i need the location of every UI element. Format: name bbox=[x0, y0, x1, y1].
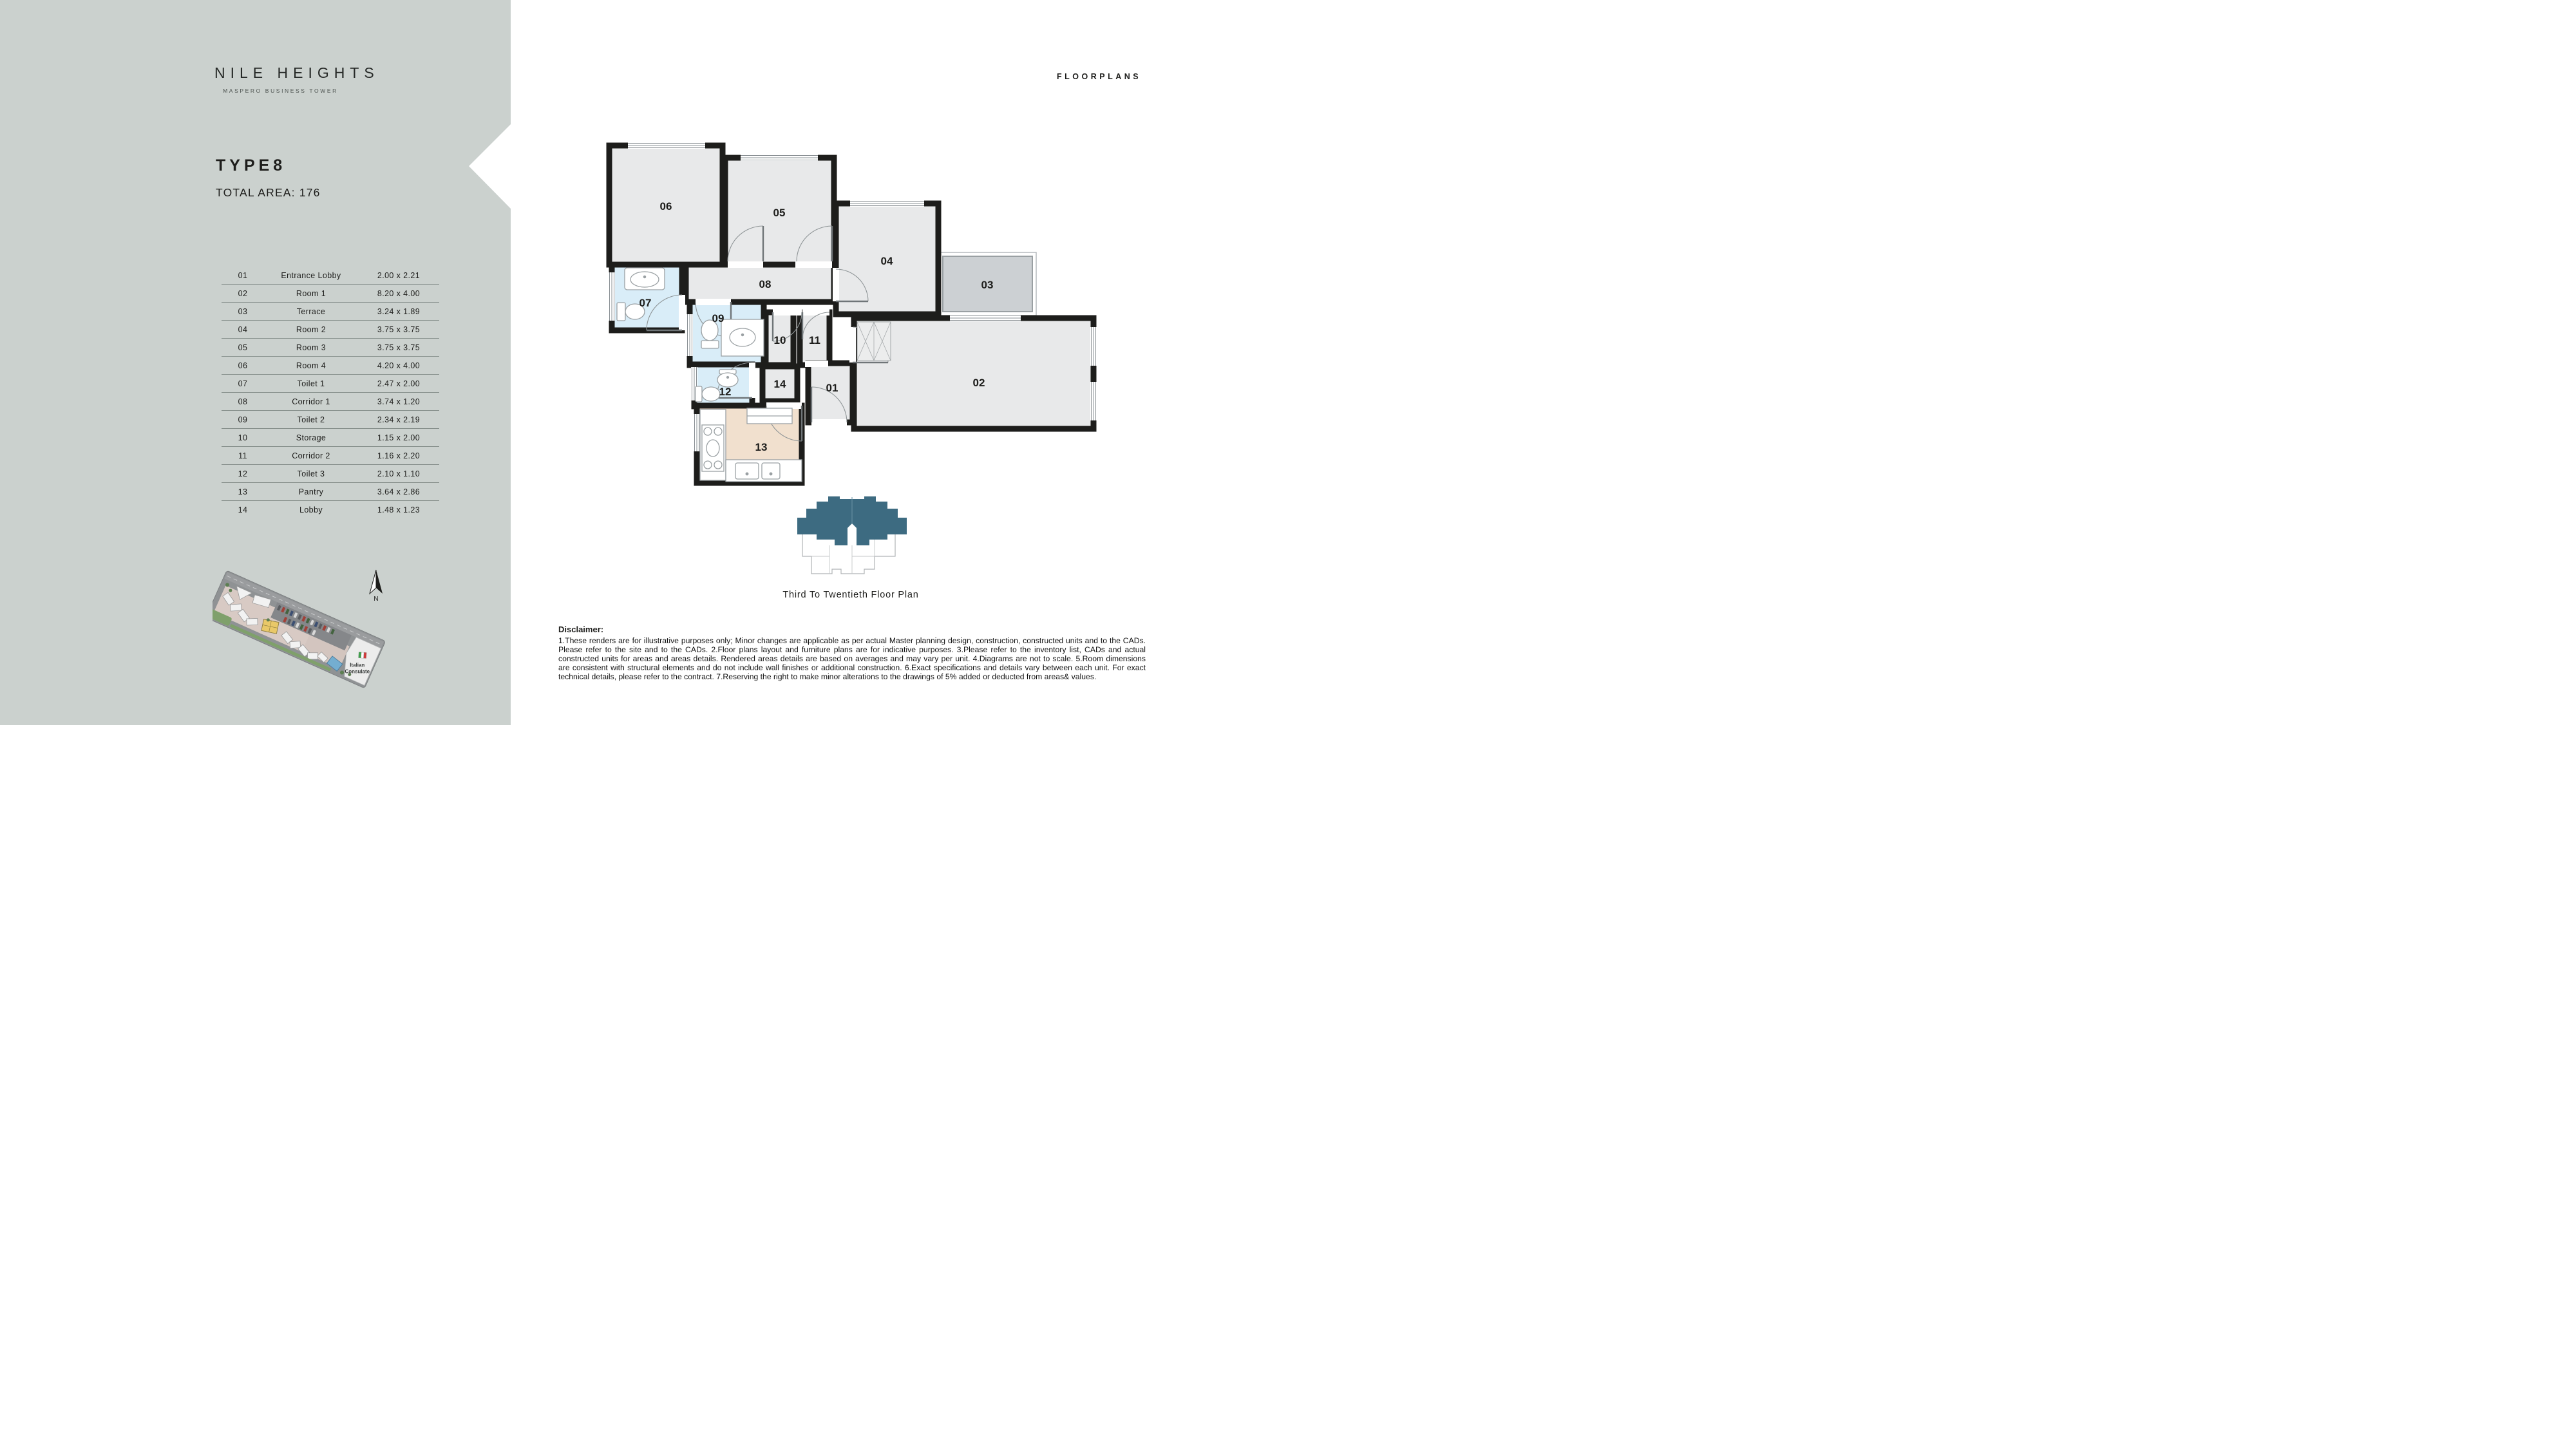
room-name: Toilet 3 bbox=[264, 469, 358, 478]
legend-row: 07Toilet 12.47 x 2.00 bbox=[222, 375, 439, 393]
room-dims: 8.20 x 4.00 bbox=[358, 289, 439, 298]
room-name: Toilet 2 bbox=[264, 415, 358, 424]
room-dims: 1.16 x 2.20 bbox=[358, 451, 439, 460]
label-room-11: 11 bbox=[809, 334, 820, 346]
room-number: 08 bbox=[222, 397, 264, 406]
room-dims: 4.20 x 4.00 bbox=[358, 361, 439, 370]
brand-subtitle: MASPERO BUSINESS TOWER bbox=[214, 88, 346, 94]
room-dims: 2.34 x 2.19 bbox=[358, 415, 439, 424]
room-number: 14 bbox=[222, 505, 264, 514]
room-number: 06 bbox=[222, 361, 264, 370]
legend-row: 01Entrance Lobby2.00 x 2.21 bbox=[222, 267, 439, 285]
italian-flag-icon bbox=[359, 652, 367, 659]
key-plan bbox=[791, 494, 913, 581]
room-number: 09 bbox=[222, 415, 264, 424]
label-room-07: 07 bbox=[639, 297, 652, 309]
label-room-12: 12 bbox=[719, 386, 732, 398]
room-name: Terrace bbox=[264, 307, 358, 316]
consulate-label-line1: Italian bbox=[350, 662, 365, 668]
label-room-03: 03 bbox=[981, 279, 994, 291]
room-number: 07 bbox=[222, 379, 264, 388]
room-name: Storage bbox=[264, 433, 358, 442]
legend-row: 12Toilet 32.10 x 1.10 bbox=[222, 465, 439, 483]
room-dims: 2.47 x 2.00 bbox=[358, 379, 439, 388]
label-room-09: 09 bbox=[712, 312, 724, 325]
room-name: Pantry bbox=[264, 487, 358, 496]
room-dims: 3.74 x 1.20 bbox=[358, 397, 439, 406]
label-room-05: 05 bbox=[773, 207, 786, 219]
legend-row: 02Room 18.20 x 4.00 bbox=[222, 285, 439, 303]
sidebar-notch-shape bbox=[469, 124, 511, 209]
legend-row: 14Lobby1.48 x 1.23 bbox=[222, 501, 439, 518]
room-number: 04 bbox=[222, 325, 264, 334]
floorplan-drawing: 06 05 04 03 07 08 09 10 11 14 12 01 02 1… bbox=[599, 134, 1098, 487]
label-room-10: 10 bbox=[774, 334, 786, 346]
room-number: 02 bbox=[222, 289, 264, 298]
room-dims: 1.48 x 1.23 bbox=[358, 505, 439, 514]
room-dims: 2.10 x 1.10 bbox=[358, 469, 439, 478]
legend-row: 06Room 44.20 x 4.00 bbox=[222, 357, 439, 375]
room-dims: 3.24 x 1.89 bbox=[358, 307, 439, 316]
room-name: Room 1 bbox=[264, 289, 358, 298]
floorplan-caption: Third To Twentieth Floor Plan bbox=[775, 590, 927, 600]
room-number: 11 bbox=[222, 451, 264, 460]
legend-row: 10Storage1.15 x 2.00 bbox=[222, 429, 439, 447]
room-name: Room 3 bbox=[264, 343, 358, 352]
room-number: 12 bbox=[222, 469, 264, 478]
label-room-14: 14 bbox=[774, 378, 786, 390]
page-title: FLOORPLANS bbox=[1057, 72, 1141, 81]
disclaimer-title: Disclaimer: bbox=[558, 625, 1146, 634]
room-dims: 2.00 x 2.21 bbox=[358, 271, 439, 280]
label-room-06: 06 bbox=[660, 200, 672, 212]
room-name: Entrance Lobby bbox=[264, 271, 358, 280]
unit-total-area: TOTAL AREA: 176 bbox=[216, 186, 321, 200]
room-name: Room 2 bbox=[264, 325, 358, 334]
legend-row: 08Corridor 13.74 x 1.20 bbox=[222, 393, 439, 411]
room-name: Corridor 1 bbox=[264, 397, 358, 406]
legend-row: 05Room 33.75 x 3.75 bbox=[222, 339, 439, 357]
legend-row: 11Corridor 21.16 x 2.20 bbox=[222, 447, 439, 465]
room-dims: 3.75 x 3.75 bbox=[358, 343, 439, 352]
room-name: Toilet 1 bbox=[264, 379, 358, 388]
room-dims: 3.64 x 2.86 bbox=[358, 487, 439, 496]
brand-title: NILE HEIGHTS bbox=[214, 64, 346, 82]
room-dims: 1.15 x 2.00 bbox=[358, 433, 439, 442]
label-room-08: 08 bbox=[759, 278, 772, 290]
room-number: 13 bbox=[222, 487, 264, 496]
room-number: 10 bbox=[222, 433, 264, 442]
room-number: 03 bbox=[222, 307, 264, 316]
room-name: Lobby bbox=[264, 505, 358, 514]
label-room-04: 04 bbox=[881, 255, 893, 267]
room-legend-table: 01Entrance Lobby2.00 x 2.21 02Room 18.20… bbox=[222, 267, 439, 518]
brand-block: NILE HEIGHTS MASPERO BUSINESS TOWER bbox=[214, 64, 346, 94]
legend-row: 13Pantry3.64 x 2.86 bbox=[222, 483, 439, 501]
room-number: 05 bbox=[222, 343, 264, 352]
room-dims: 3.75 x 3.75 bbox=[358, 325, 439, 334]
room-number: 01 bbox=[222, 271, 264, 280]
brochure-page: { "brand": { "title": "NILE HEIGHTS", "s… bbox=[0, 0, 1288, 725]
site-map: Italian Consulate bbox=[213, 567, 406, 695]
label-room-13: 13 bbox=[755, 441, 768, 453]
unit-type-title: TYPE8 bbox=[216, 156, 286, 175]
disclaimer-block: Disclaimer: 1.These renders are for illu… bbox=[558, 625, 1146, 682]
wardrobe bbox=[857, 322, 891, 361]
legend-row: 04Room 23.75 x 3.75 bbox=[222, 321, 439, 339]
legend-row: 03Terrace3.24 x 1.89 bbox=[222, 303, 439, 321]
label-room-02: 02 bbox=[973, 377, 985, 389]
key-plan-lower-outline bbox=[802, 534, 895, 574]
legend-row: 09Toilet 22.34 x 2.19 bbox=[222, 411, 439, 429]
room-name: Corridor 2 bbox=[264, 451, 358, 460]
disclaimer-body: 1.These renders are for illustrative pur… bbox=[558, 637, 1146, 682]
room-name: Room 4 bbox=[264, 361, 358, 370]
label-room-01: 01 bbox=[826, 382, 838, 394]
